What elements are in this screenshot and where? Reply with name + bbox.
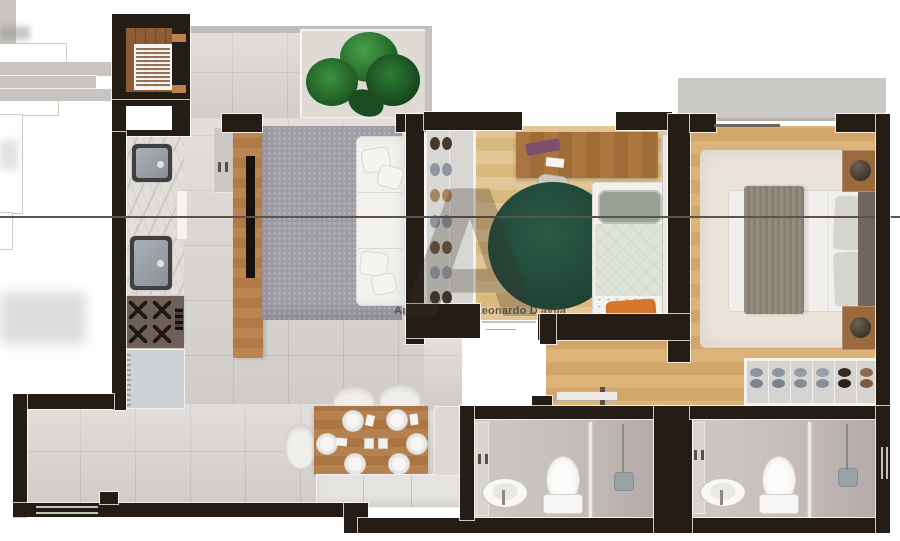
- shoe-pair: [430, 241, 440, 254]
- shoe-pair: [430, 189, 440, 202]
- lamp-icon: [850, 160, 871, 181]
- kitchen-sink: [130, 236, 172, 290]
- door-leaf: [556, 391, 618, 401]
- wall: [690, 406, 878, 419]
- wall: [876, 114, 890, 414]
- bed-blanket: [744, 186, 804, 314]
- shower-glass: [808, 422, 811, 518]
- wall: [540, 314, 556, 344]
- master-balcony-slider: [0, 89, 124, 101]
- cooktop-knobs: [175, 308, 183, 330]
- place-setting: [386, 409, 408, 431]
- shower-head-icon: [614, 472, 634, 491]
- kitchen-sink: [132, 144, 172, 182]
- shoe-pair: [750, 368, 763, 377]
- napkin: [409, 413, 418, 425]
- desk: [516, 132, 658, 178]
- place-setting: [342, 410, 364, 432]
- burner-icon: [153, 325, 171, 343]
- window-line: [886, 447, 888, 479]
- door-sill-line: [482, 321, 536, 323]
- wall: [13, 394, 27, 518]
- burner-icon: [129, 301, 147, 319]
- toilet-tank: [759, 494, 799, 514]
- shower-glass: [589, 422, 592, 518]
- shoe-pair: [430, 291, 440, 304]
- edge-smudge: [0, 26, 30, 40]
- door-handle: [600, 387, 605, 392]
- wall: [358, 518, 890, 533]
- wall: [406, 304, 480, 338]
- cabinet-handle: [701, 450, 704, 460]
- shoe-closet: [744, 358, 880, 406]
- door-sill-line: [36, 512, 98, 514]
- edge-smudge: [0, 292, 86, 344]
- cabinet-handle: [225, 162, 228, 172]
- shoe-pair: [816, 368, 829, 377]
- entry-door-opening: [0, 44, 66, 62]
- shower-pipe: [622, 424, 624, 472]
- cabinet-handle: [218, 162, 221, 172]
- shoe-pair: [430, 266, 440, 279]
- burner-icon: [129, 325, 147, 343]
- terrace-edge: [425, 27, 432, 120]
- drying-rack-icon: [134, 44, 172, 90]
- shoe-pair: [794, 368, 807, 377]
- centerpiece: [378, 438, 388, 449]
- shaft-void: [126, 106, 172, 130]
- bathroom-sink: [700, 478, 746, 507]
- wall: [460, 406, 474, 520]
- wood-stub: [172, 34, 186, 42]
- bathroom-sink: [482, 478, 528, 508]
- edge-smudge: [0, 140, 18, 170]
- place-setting: [406, 433, 428, 455]
- wall: [112, 132, 126, 410]
- wall: [616, 112, 672, 130]
- paper-icon: [546, 157, 565, 168]
- bed-pillow: [598, 190, 662, 224]
- sofa-seam: [358, 248, 404, 249]
- wood-stub: [172, 85, 186, 93]
- shoe-pair: [860, 368, 873, 377]
- shoe-pair: [430, 163, 440, 176]
- door-handle: [600, 400, 605, 405]
- centerpiece: [364, 438, 374, 449]
- wall: [654, 406, 692, 533]
- nook-floor: [424, 338, 462, 410]
- wall: [690, 114, 716, 132]
- wardrobe-divider: [449, 131, 450, 317]
- wall: [222, 114, 262, 132]
- dining-chair: [284, 424, 316, 470]
- wall: [100, 492, 118, 504]
- headboard: [858, 188, 878, 312]
- cabinet-handle: [478, 454, 481, 464]
- place-setting: [344, 453, 366, 475]
- burner-icon: [153, 301, 171, 319]
- sink-faucet: [720, 490, 723, 505]
- watermark-rule: [486, 329, 516, 330]
- slider-panel-line: [714, 124, 780, 127]
- refrigerator: [124, 350, 184, 408]
- cabinet-handle: [485, 454, 488, 464]
- door-sill-line: [36, 506, 98, 508]
- floor-plan: André Alves ® Leonardo D'avila es A: [0, 0, 900, 541]
- dishwasher: [176, 190, 188, 240]
- shoe-pair: [430, 137, 440, 150]
- place-setting: [388, 453, 410, 475]
- shower-pipe: [846, 424, 848, 470]
- window-line: [881, 447, 883, 479]
- shoe-pair: [838, 368, 851, 377]
- tall-cabinet: [214, 128, 234, 192]
- shoe-pair: [772, 368, 785, 377]
- sink-faucet: [502, 490, 505, 505]
- cabinet-handle: [694, 450, 697, 460]
- wall: [13, 394, 114, 409]
- bedroom2-window: [0, 76, 96, 89]
- shower-head-icon: [838, 468, 858, 487]
- wall: [460, 406, 660, 419]
- napkin: [336, 437, 348, 446]
- bed-duvet: [595, 224, 667, 298]
- bedroom2-door-opening: [0, 101, 58, 115]
- wall: [538, 314, 690, 340]
- lamp-icon: [850, 317, 871, 338]
- sofa-seam: [358, 192, 404, 193]
- bathroom2-window-opening: [0, 213, 12, 249]
- side-cabinet: [434, 406, 462, 476]
- wall: [836, 114, 878, 132]
- toilet-tank: [543, 494, 583, 514]
- wall: [424, 112, 522, 130]
